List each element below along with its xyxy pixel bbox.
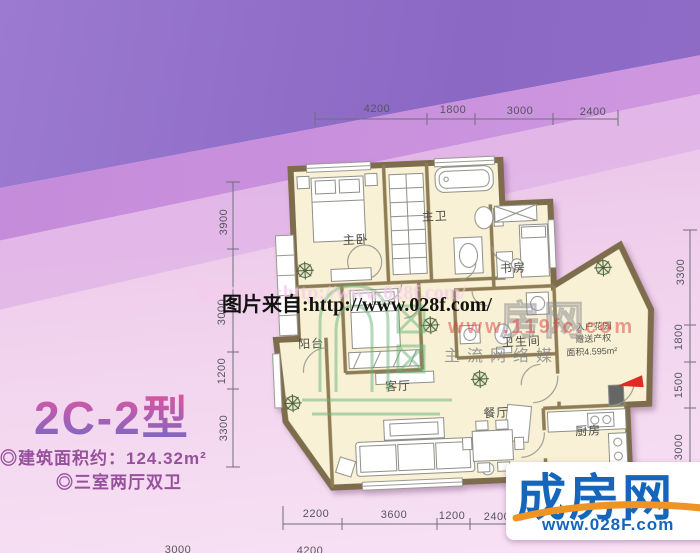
unit-title: 2C-2型 (34, 382, 190, 448)
dim-right-3: 1500 (673, 372, 685, 398)
dim-top-1: 4200 (364, 103, 390, 115)
grey-watermark: 主流网络媒 (444, 342, 559, 366)
dim-top-4: 2400 (580, 106, 606, 118)
dim-right-1: 3300 (675, 259, 687, 285)
dim-left-1: 3900 (218, 209, 230, 235)
dim-bottom-1: 2200 (303, 508, 329, 520)
dim-right-2: 1800 (673, 324, 685, 350)
dim-top-3: 3000 (507, 105, 533, 117)
dim-bottom-2: 3600 (381, 509, 407, 521)
dim-far-1: 3000 (165, 544, 191, 553)
layout-text: ◎三室两厅双卫 (56, 468, 182, 493)
dim-far-2: 4200 (297, 545, 323, 553)
site-logo: 成房网 www.028F.com (506, 462, 700, 540)
area-text: ◎建筑面积约：124.32m² (0, 444, 207, 469)
main-watermark: 图片来自:http://www.028f.com/ (222, 288, 492, 317)
dim-left-4: 3300 (218, 415, 230, 441)
page: 主卧 主卫 书房 卫生间 阳台 客厅 餐厅 厨房 入户花园 赠送产权 面积4.5… (0, 0, 700, 553)
dim-right-4: 3000 (673, 434, 685, 460)
dim-bottom-3: 1200 (439, 510, 465, 522)
entrance-arrow (615, 372, 645, 394)
dim-left-3: 1200 (216, 358, 228, 384)
red-watermark: www.119fc.com (448, 316, 635, 339)
logo-url: www.028F.com (542, 515, 674, 535)
dim-top-2: 1800 (440, 104, 466, 116)
